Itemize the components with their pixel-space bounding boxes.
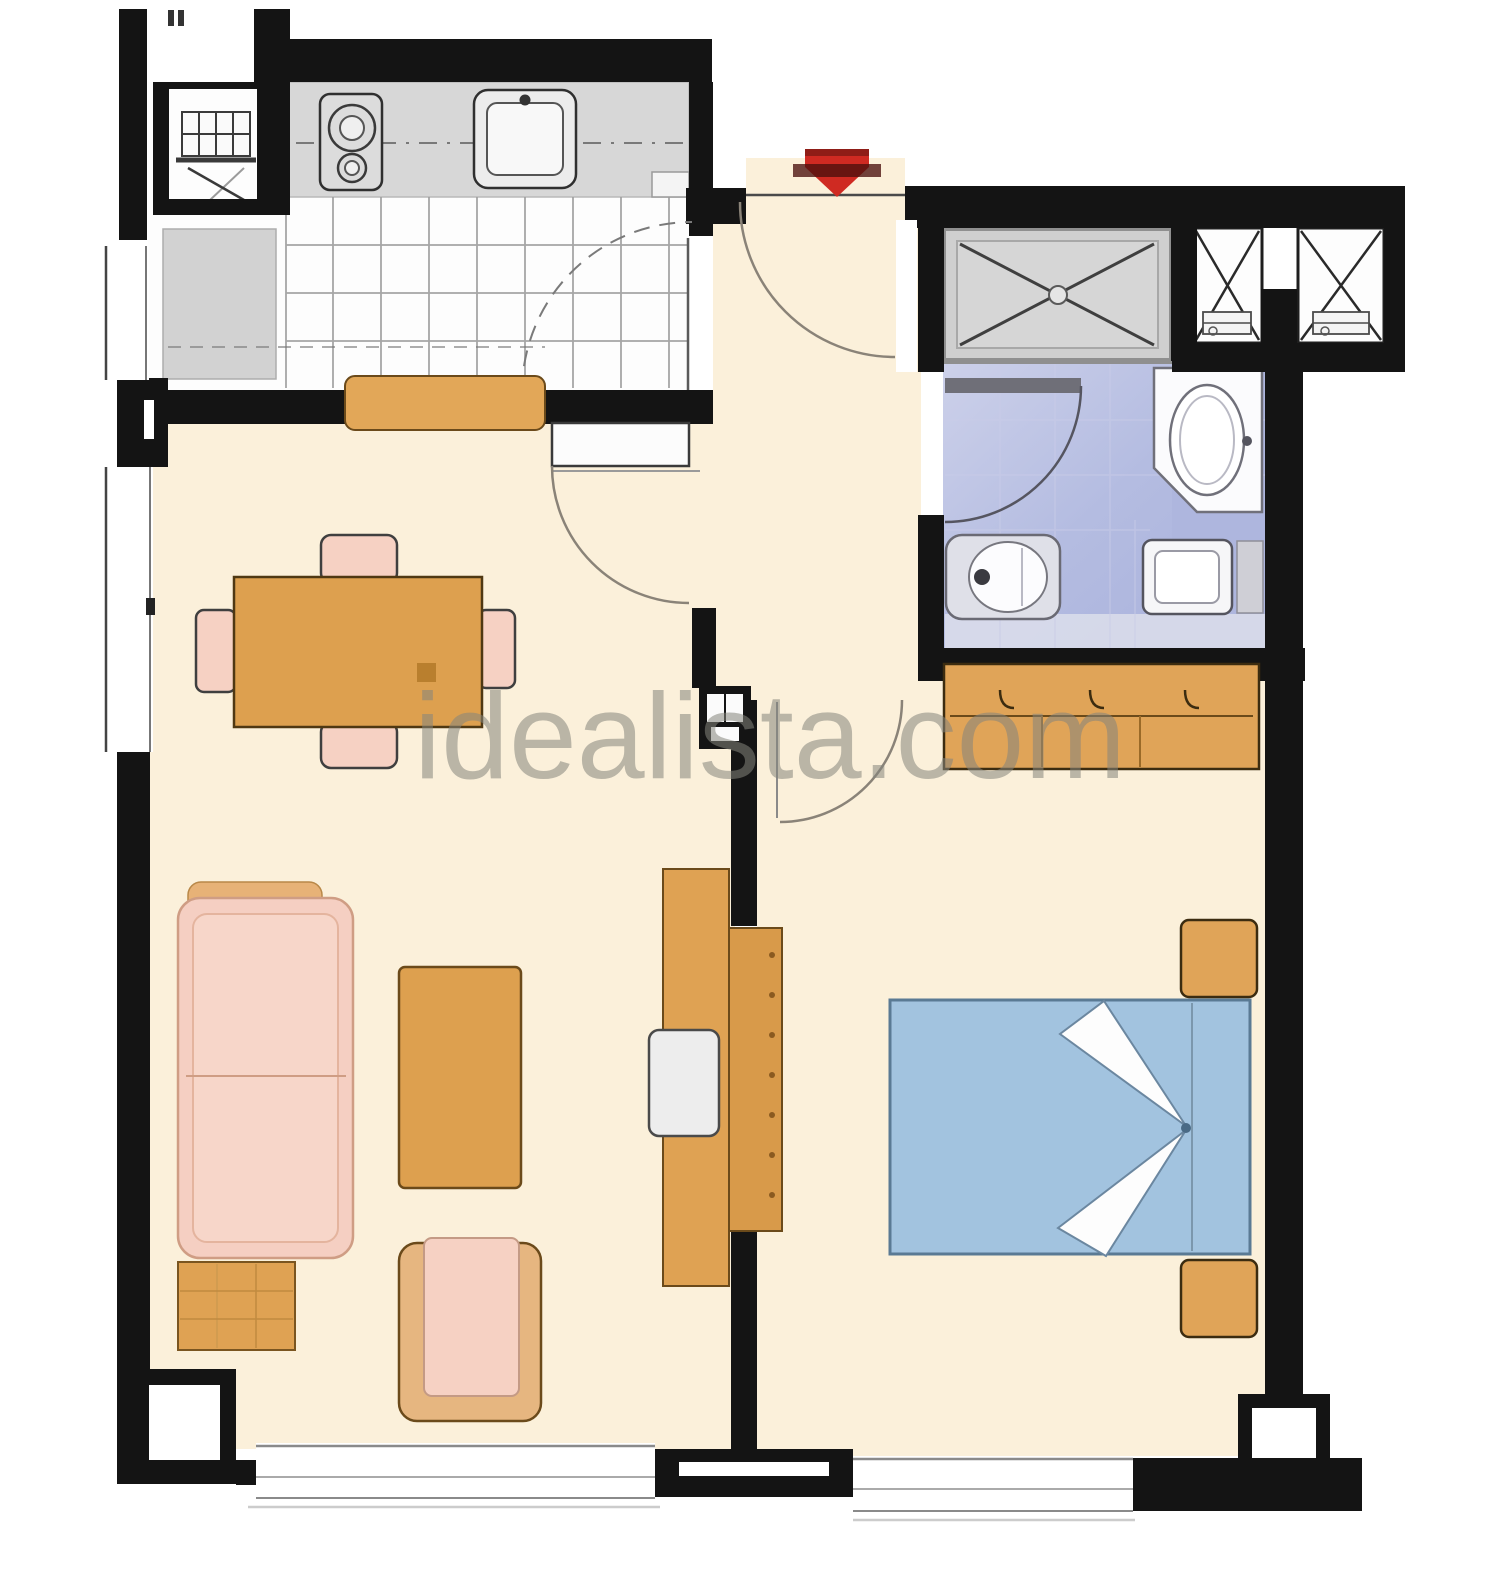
svg-text:idealista.com: idealista.com bbox=[414, 668, 1126, 804]
